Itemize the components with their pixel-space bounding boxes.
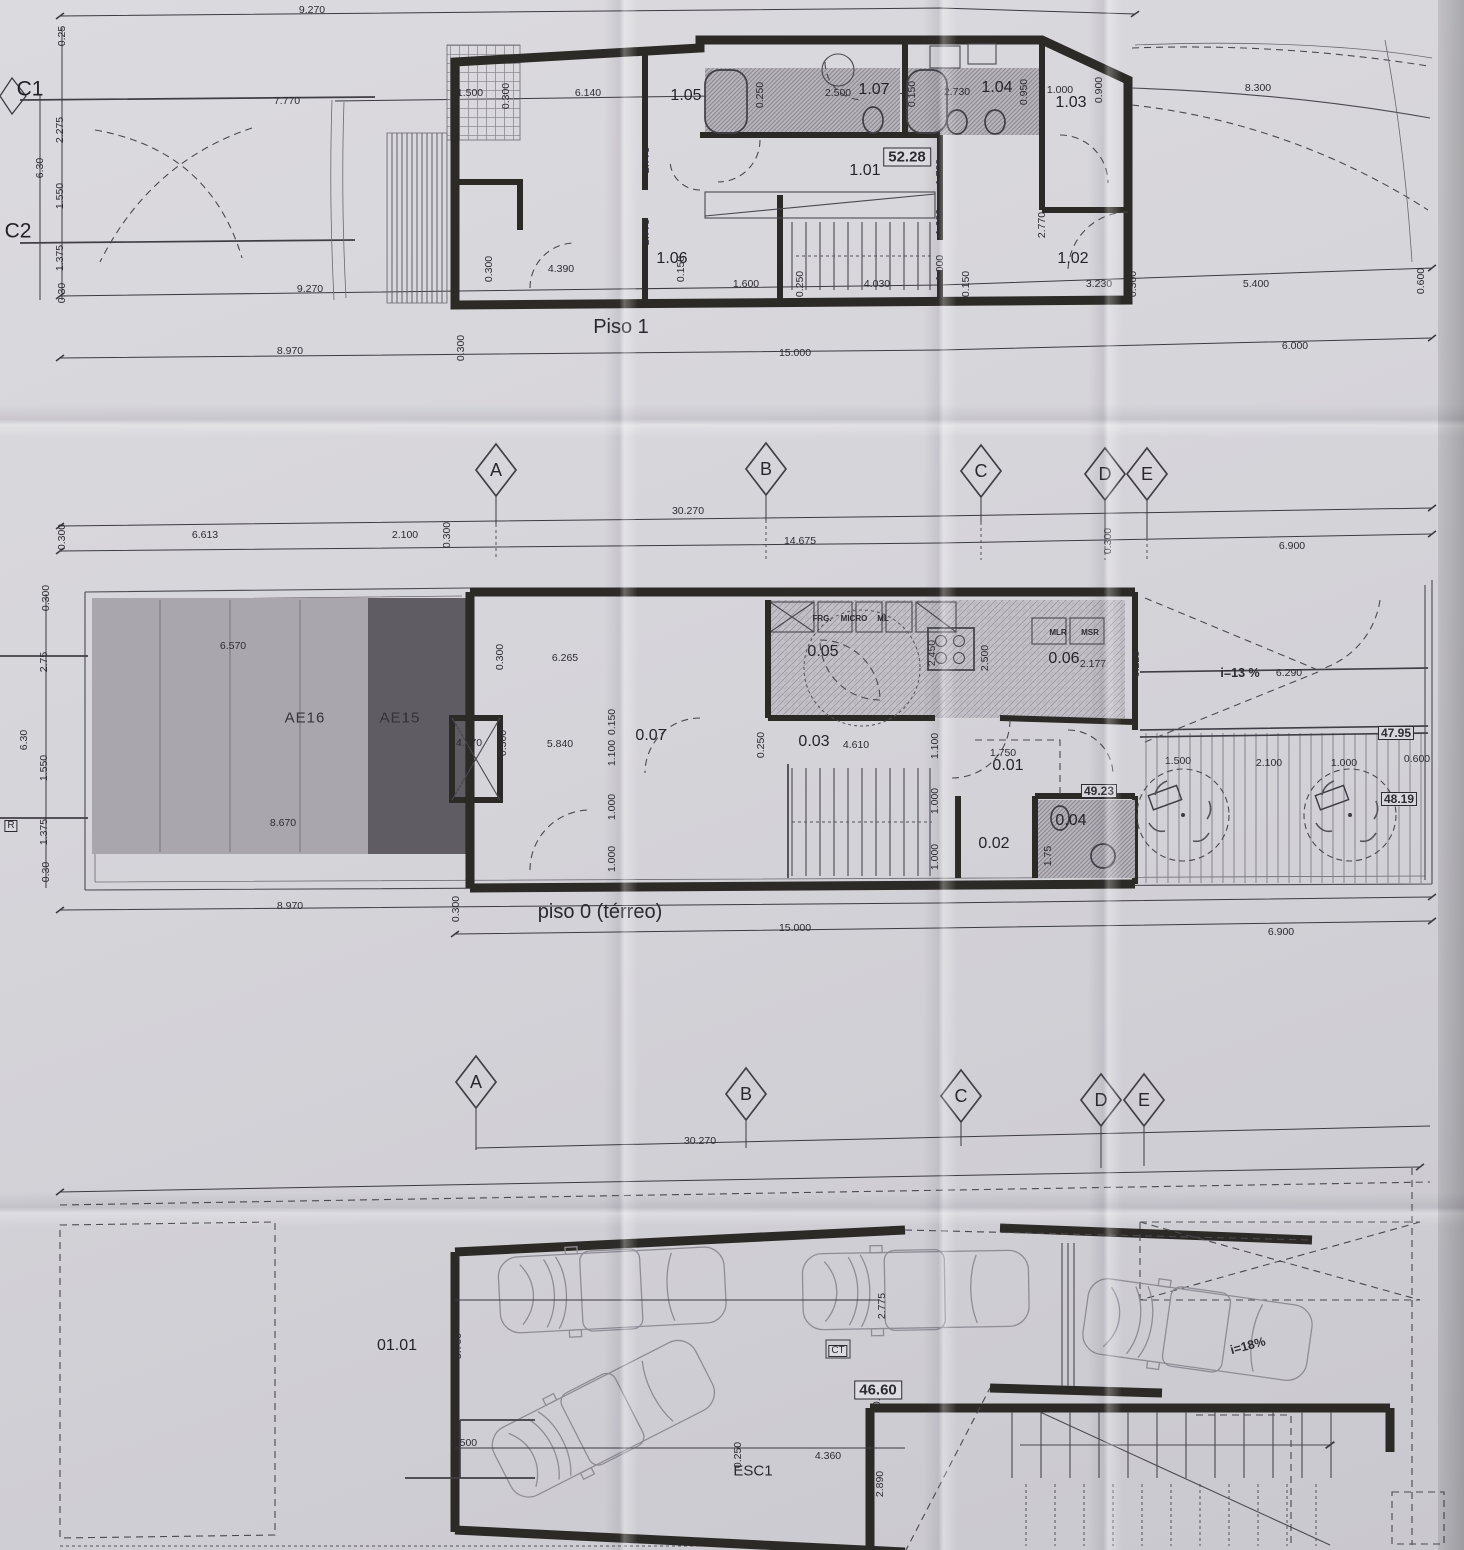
room-label-0.01: 0.01: [992, 758, 1023, 774]
dimr-label: 0.250: [795, 271, 806, 297]
piso1-area-badge: 52.28: [883, 148, 931, 167]
dim-label: 30.270: [672, 506, 704, 517]
grid-letter-E: E: [1141, 465, 1153, 483]
dim-label: 1.500: [457, 88, 483, 99]
dimr-label: 1.75: [1043, 846, 1054, 866]
floor-plan-sheet: 9.2707.770C1C20.252.2756.301.5501.3750.3…: [0, 0, 1464, 1550]
dimr-label: 1.000: [935, 255, 946, 281]
dimr-label: 2.770: [1037, 212, 1048, 238]
garage-area-badge: 46.60: [854, 1381, 902, 1400]
dimr-label: 0.150: [676, 256, 687, 282]
dim-label: 1.000: [1331, 758, 1357, 769]
note-label: i=13 %: [1220, 667, 1259, 680]
dimr-label: 2.500: [980, 645, 991, 671]
grid-letter-A: A: [490, 461, 502, 479]
dim-label: 2.500: [825, 88, 851, 99]
dim-label: 6.900: [1279, 541, 1305, 552]
dimr-label: 6.30: [35, 158, 46, 178]
dimr-label: 0.250: [755, 82, 766, 108]
dimr-label: 0.300: [442, 522, 453, 548]
dim-label: 0.600: [1404, 754, 1430, 765]
boxed-label: R: [4, 820, 17, 832]
dim-label: 14.675: [784, 536, 816, 547]
dimr-label: 2.775: [641, 219, 652, 245]
dim-label: 1.500: [1165, 756, 1191, 767]
dimr-label: 2.275: [55, 117, 66, 143]
room-label-0.04: 0.04: [1055, 813, 1086, 829]
dim-label: 6.900: [1268, 927, 1294, 938]
zone-label: AE16: [285, 711, 326, 726]
piso0-title: piso 0 (térreo): [538, 902, 663, 922]
dimr-label: 0.250: [756, 732, 767, 758]
dimr-label: 1.550: [39, 755, 50, 781]
badge2-label: 47.95: [1378, 726, 1414, 740]
grid-letter-B: B: [740, 1085, 752, 1103]
dimr-label: 1.375: [39, 819, 50, 845]
car-1: [497, 1239, 727, 1341]
dim-label: 4.030: [864, 279, 890, 290]
dim-label: 9.270: [299, 5, 325, 16]
dim-label: 4.370: [456, 738, 482, 749]
room-label-1.01: 1.01: [849, 163, 880, 179]
dimr-label: 1.000: [935, 209, 946, 235]
grid-row-2: [60, 1056, 1430, 1192]
dimr-label: 1.000: [930, 844, 941, 870]
dimr-label: 1.375: [55, 245, 66, 271]
dim-label: 2.177: [1080, 659, 1106, 670]
room-label-0.03: 0.03: [798, 734, 829, 750]
dimr-label: 0.300: [456, 335, 467, 361]
dimr-label: 0.30: [41, 862, 52, 882]
bath-hatch-1: [705, 68, 900, 135]
room-label-0.07: 0.07: [635, 728, 666, 744]
dimr-label: 0.300: [1128, 271, 1139, 297]
car-2: [802, 1243, 1030, 1337]
badge2-label: 49.23: [1081, 784, 1117, 798]
dim-label: 6.570: [220, 641, 246, 652]
balcony-hatch: [387, 133, 447, 303]
dim-label: 6.613: [192, 530, 218, 541]
dim-label: 15.000: [779, 348, 811, 359]
room-label-1.07: 1.07: [858, 82, 889, 98]
room-label-0.06: 0.06: [1048, 651, 1079, 667]
dim-label: 7.770: [274, 96, 300, 107]
dimr-label: 0.900: [1094, 77, 1105, 103]
dim-label: 2.730: [944, 87, 970, 98]
dimr-label: 0.150: [607, 709, 618, 735]
fix-label: MSR: [1081, 629, 1099, 637]
fix-label: ML: [877, 615, 889, 623]
dim-label: 4.500: [451, 1438, 477, 1449]
piso1-plan: [0, 8, 1432, 358]
dim-label: 4.390: [548, 264, 574, 275]
dim-label: 30.270: [684, 1136, 716, 1147]
grid-letter-A: A: [470, 1073, 482, 1091]
dimr-label: 5.700: [453, 1333, 464, 1359]
sink-2: [968, 44, 996, 64]
dimr-label: 1.700: [935, 159, 946, 185]
dim-label: 4.610: [843, 740, 869, 751]
dim-label: 3.230: [1086, 279, 1112, 290]
dimr-label: 0.300: [57, 524, 68, 550]
dimr-label: 0.300: [1103, 528, 1114, 554]
room-label-01.01: 01.01: [377, 1338, 417, 1354]
dim-label: 8.300: [1245, 83, 1271, 94]
grid-letter-D: D: [1099, 465, 1112, 483]
dimr-label: 1.100: [607, 740, 618, 766]
piso0-plan: [0, 580, 1432, 934]
dimr-label: 0.150: [961, 271, 972, 297]
dim-label: 15.000: [779, 923, 811, 934]
dim-label: 8.670: [270, 818, 296, 829]
room-label-1.02: 1.02: [1057, 251, 1088, 267]
piso1-title: Piso 1: [593, 317, 649, 337]
dim-label: 6.290: [1276, 668, 1302, 679]
dim-label: 4.360: [815, 1451, 841, 1462]
fix-label: MLR: [1049, 629, 1066, 637]
room-label-0.05: 0.05: [807, 644, 838, 660]
stair-label: ESC1: [733, 1464, 772, 1479]
room-label-1.05: 1.05: [670, 88, 701, 104]
dim-label: 6.140: [575, 88, 601, 99]
dim-label: 9.270: [297, 284, 323, 295]
grid-row-1: [60, 443, 1432, 560]
dim-label: 2.100: [1256, 758, 1282, 769]
fix-label: MICRO: [841, 615, 868, 623]
dim-label: 6.265: [552, 653, 578, 664]
room-label-1.03: 1.03: [1055, 95, 1086, 111]
fix-label: FRG.: [812, 615, 831, 623]
dim-label: 5.400: [1243, 279, 1269, 290]
badge2-label: 48.19: [1381, 792, 1417, 806]
dimr-label: 0.300: [451, 896, 462, 922]
boxed-label: CT: [828, 1345, 847, 1357]
grid-letter-E: E: [1138, 1091, 1150, 1109]
dim-label: 2.100: [392, 530, 418, 541]
dimr-label: 0.25: [57, 26, 68, 46]
dimr-label: 6.30: [19, 730, 30, 750]
room-label-0.02: 0.02: [978, 836, 1009, 852]
dimr-label: 1.000: [930, 788, 941, 814]
dimr-label: 2.775: [641, 147, 652, 173]
sheet-edge-shadow: [1438, 0, 1464, 1550]
plan-drawing: [0, 0, 1464, 1550]
dimr-label: 0.300: [495, 644, 506, 670]
dimr-label: 2.890: [875, 1471, 886, 1497]
dimr-label: 2.775: [877, 1293, 888, 1319]
dimr-label: 2.450: [927, 640, 938, 666]
dimr-label: 0.150: [907, 81, 918, 107]
dimr-label: 1.550: [55, 183, 66, 209]
zone-label: AE15: [380, 711, 421, 726]
garage-plan: [60, 1168, 1444, 1550]
dimr-label: 0.950: [1019, 79, 1030, 105]
dim-label: 6.000: [1282, 341, 1308, 352]
dimr-label: 1.100: [930, 733, 941, 759]
grid-letter-C: C: [955, 1087, 968, 1105]
dim-label: 1.600: [733, 279, 759, 290]
side-label: C1: [17, 79, 44, 100]
grid-letter-D: D: [1095, 1091, 1108, 1109]
side-label: C2: [5, 221, 32, 242]
dim-label: 5.840: [547, 739, 573, 750]
dimr-label: 2.75: [39, 652, 50, 672]
dimr-label: 1.000: [607, 794, 618, 820]
car-ramp: [1079, 1269, 1315, 1390]
dim-label: 8.970: [277, 346, 303, 357]
grid-letter-C: C: [975, 462, 988, 480]
sink-1: [930, 46, 960, 68]
dimr-label: 0.300: [484, 256, 495, 282]
dimr-label: 0.228: [1131, 651, 1142, 677]
dimr-label: 0.300: [501, 83, 512, 109]
car-3: [482, 1327, 724, 1510]
dimr-label: 0.300: [41, 585, 52, 611]
dimr-label: 0.300: [498, 730, 509, 756]
dimr-label: 0.30: [57, 283, 68, 303]
dimr-label: 1.000: [607, 846, 618, 872]
room-label-1.04: 1.04: [981, 80, 1012, 96]
dimr-label: 0.600: [1416, 268, 1427, 294]
grid-letter-B: B: [760, 460, 772, 478]
dim-label: 8.970: [277, 901, 303, 912]
